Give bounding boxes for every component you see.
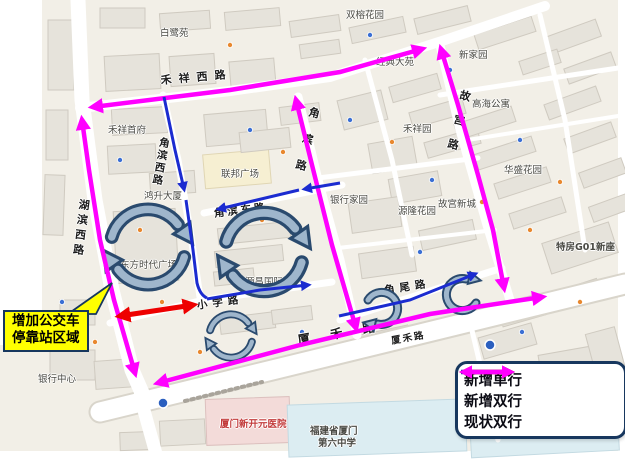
circulation-loop-icon	[95, 209, 200, 284]
legend-label-new-twoway: 新增双行	[464, 390, 522, 411]
circulation-loop-icon	[209, 213, 319, 291]
legend-label-existing-twoway: 现状双行	[464, 411, 522, 432]
arrow-hexiangxi	[93, 49, 422, 107]
arrow-jiaobinxi-1	[164, 97, 184, 189]
circulation-loop-icons	[95, 209, 482, 357]
new-twoway-arrows	[120, 305, 193, 316]
legend-arrow-existing-twoway	[458, 364, 516, 380]
new-oneway-arrows	[164, 97, 475, 316]
bus-stop-callout: 增加公交车 停靠站区域	[3, 310, 89, 352]
arrow-jiaobin	[296, 100, 356, 328]
arrow-jiaobindong-1	[305, 183, 340, 189]
arrow-gugong	[441, 49, 504, 288]
callout-line2: 停靠站区域	[12, 330, 80, 347]
legend-item-existing-twoway: 现状双行	[464, 412, 616, 430]
arrow-jiaobinxi-2	[186, 200, 207, 298]
arrow-hubinxi	[82, 120, 135, 373]
arrow-xiaoxue-west	[120, 305, 193, 316]
legend-item-new-twoway: 新增双行	[464, 391, 616, 409]
legend: 新增单行新增双行现状双行	[455, 361, 625, 439]
circulation-loop-icon	[201, 314, 262, 357]
traffic-plan-map: 白鹭苑双榕花园经典大苑新家园高海公寓禾祥园华盛花园故宫新城源隆花园银行家园禾祥首…	[0, 0, 625, 461]
callout-line1: 增加公交车	[12, 313, 80, 330]
